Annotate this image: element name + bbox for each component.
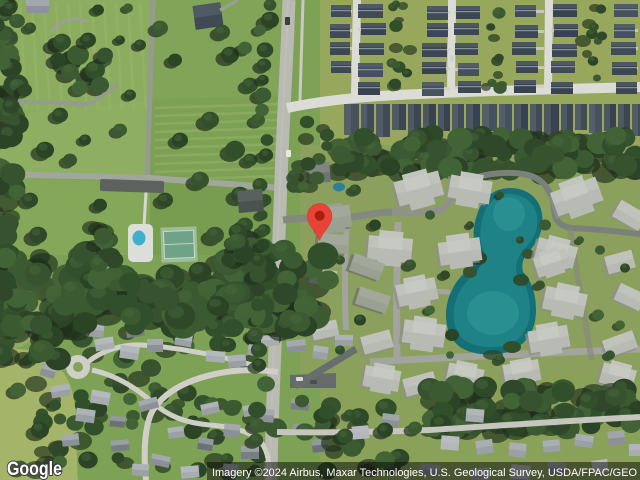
svg-text:Imagery ©2024 Airbus, Maxar Te: Imagery ©2024 Airbus, Maxar Technologies…	[212, 467, 637, 479]
svg-text:Google: Google	[7, 459, 62, 480]
